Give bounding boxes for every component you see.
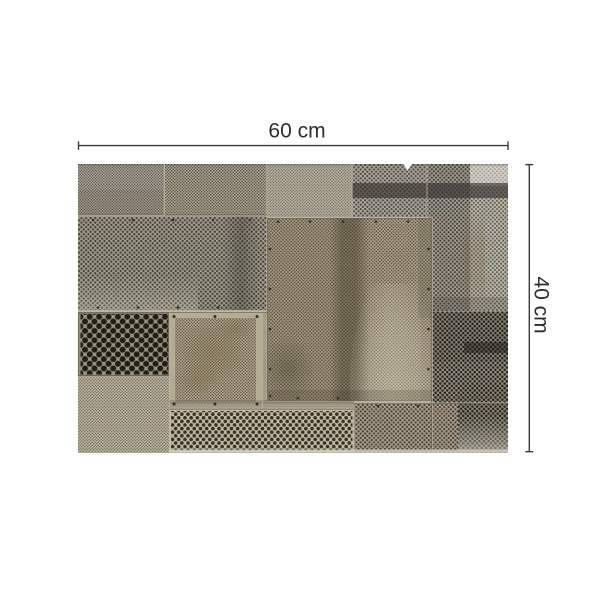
- svg-text:40 cm: 40 cm: [530, 276, 553, 333]
- svg-text:60 cm: 60 cm: [268, 120, 325, 143]
